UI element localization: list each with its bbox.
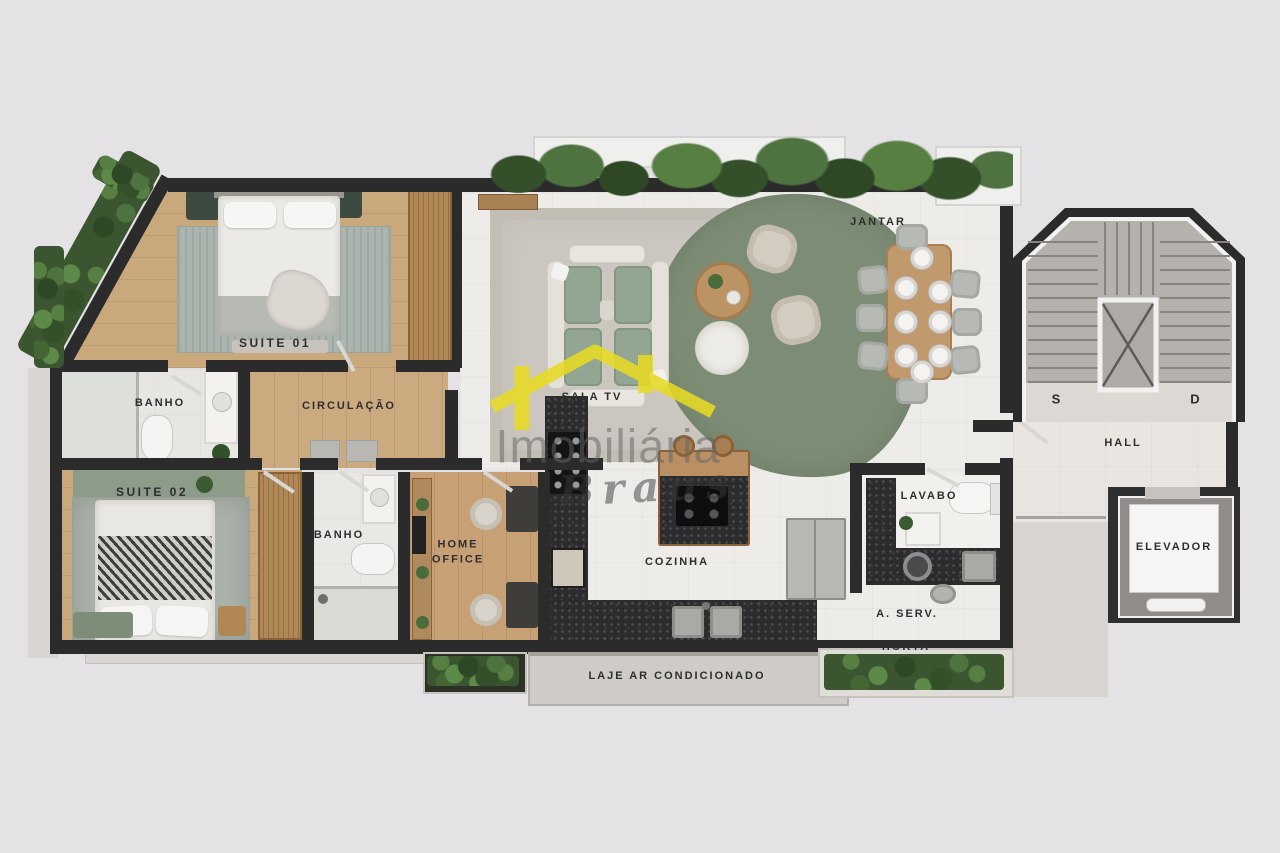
dining-chair-left-2: [856, 304, 886, 332]
label-sala-tv: SALA TV: [562, 391, 623, 403]
sofa-right-cushion-1: [614, 266, 652, 324]
label-jantar: JANTAR: [850, 216, 906, 228]
suite02-headboard-plant: [196, 476, 213, 493]
sofa-side-table: [600, 300, 614, 320]
wall-suite01-sala: [452, 192, 462, 368]
wall-suite02-banho2: [302, 472, 314, 640]
suite02-bench: [73, 612, 133, 638]
wall-cozinha-aserv: [850, 463, 862, 593]
desk-chair-2: [470, 594, 502, 626]
label-circulacao: CIRCULAÇÃO: [302, 400, 396, 412]
office-planter-plants: [427, 656, 519, 686]
suite02-nightstand: [218, 606, 246, 636]
wall-banho2-office: [398, 472, 410, 640]
hall-lower-terrace: [1008, 522, 1108, 697]
desk-2: [506, 582, 538, 628]
label-banho2: BANHO: [314, 529, 364, 541]
watermark-brand-script: Braus: [557, 458, 738, 516]
wall-h2-a: [62, 458, 262, 470]
coffee-table: [694, 262, 752, 320]
wall-h2-b: [300, 458, 338, 470]
top-planter-plants: [487, 128, 1013, 212]
banho2-basin: [370, 488, 389, 507]
wall-left: [50, 360, 62, 652]
suite02-pillow-2: [155, 605, 208, 638]
dining-chair-left-1: [857, 265, 890, 296]
label-stair-s: S: [1052, 392, 1063, 407]
banho2-shower-head: [318, 594, 328, 604]
banho1-basin: [212, 392, 232, 412]
label-suite01: SUITE 01: [239, 336, 311, 350]
sofa-left-cushion-1: [564, 266, 602, 324]
place-setting: [911, 247, 933, 269]
kitchen-faucet: [702, 602, 710, 610]
banho1-toilet: [142, 416, 172, 460]
dining-chair-left-3: [857, 341, 890, 372]
label-elevador: ELEVADOR: [1136, 541, 1212, 553]
dining-chair-right-3: [949, 345, 982, 376]
hall-mat-2: [346, 440, 378, 462]
place-setting: [911, 361, 933, 383]
coffee-table-plant: [708, 274, 723, 289]
banho2-toilet: [352, 544, 394, 574]
fridge-divider: [814, 520, 816, 598]
hedge-left: [34, 246, 64, 368]
place-setting: [929, 345, 951, 367]
wall-circ-sala: [445, 390, 458, 458]
kitchen-sink-1: [672, 606, 704, 638]
desk-chair-1: [470, 498, 502, 530]
sofa-right-cushion-2: [614, 328, 652, 386]
hall-threshold: [1016, 516, 1106, 519]
dining-chair-right-1: [949, 269, 982, 300]
place-setting: [895, 311, 917, 333]
label-home-office: HOME OFFICE: [426, 538, 490, 569]
label-horta: HORTA: [882, 641, 930, 653]
suite01-pillow-2: [284, 202, 336, 228]
wall-h1-c: [396, 360, 460, 372]
label-banho1: BANHO: [135, 397, 185, 409]
label-lavabo: LAVABO: [901, 490, 958, 502]
wall-lavabo-top-b: [965, 463, 1013, 475]
home-office-plant-3: [416, 616, 429, 629]
label-suite02: SUITE 02: [116, 485, 188, 499]
wall-right-lower: [1000, 458, 1013, 648]
pouf: [696, 322, 748, 374]
wall-h1-a: [62, 360, 168, 372]
wall-h1-b: [206, 360, 348, 372]
dining-chair-right-2: [952, 308, 982, 336]
home-office-tv-panel: [412, 516, 426, 554]
label-cozinha: COZINHA: [645, 556, 709, 568]
stairwell: [1005, 200, 1250, 425]
sofa-left-cushion-2: [564, 328, 602, 386]
suite02-wardrobe: [258, 472, 302, 640]
wall-banho1-circ: [238, 372, 250, 460]
place-setting: [929, 281, 951, 303]
label-stair-d: D: [1190, 392, 1201, 407]
banho1-shower-floor: [62, 368, 136, 470]
label-hall: HALL: [1104, 437, 1141, 449]
sofa-top-bench: [570, 246, 644, 262]
floor-plan-canvas: SUITE 01 BANHO CIRCULAÇÃO SUITE 02 BANHO…: [0, 0, 1280, 853]
kitchen-sink-2: [710, 606, 742, 638]
kitchen-art-frame: [551, 548, 585, 588]
coffee-table-tray: [726, 290, 741, 305]
label-aserv: A. SERV.: [876, 608, 938, 620]
banho1-shower-glass: [136, 368, 139, 470]
aserv-sink: [962, 551, 996, 582]
suite01-wardrobe: [408, 186, 452, 368]
suite02-throw-pattern: [98, 536, 212, 600]
washer: [903, 552, 932, 581]
fridge: [786, 518, 846, 600]
home-office-plant-1: [416, 498, 429, 511]
wall-office-cozinha: [538, 472, 550, 640]
place-setting: [929, 311, 951, 333]
suite01-pillow-1: [224, 202, 276, 228]
elevator-door-slot: [1146, 598, 1206, 612]
label-laje: LAJE AR CONDICIONADO: [588, 670, 765, 682]
aserv-basin: [930, 584, 956, 604]
wall-lavabo-top-a: [852, 463, 925, 475]
horta-plants: [824, 654, 1004, 690]
elevator-door-notch: [1145, 487, 1200, 499]
lavabo-plant: [899, 516, 913, 530]
place-setting: [895, 277, 917, 299]
wall-h2-c: [376, 458, 482, 470]
